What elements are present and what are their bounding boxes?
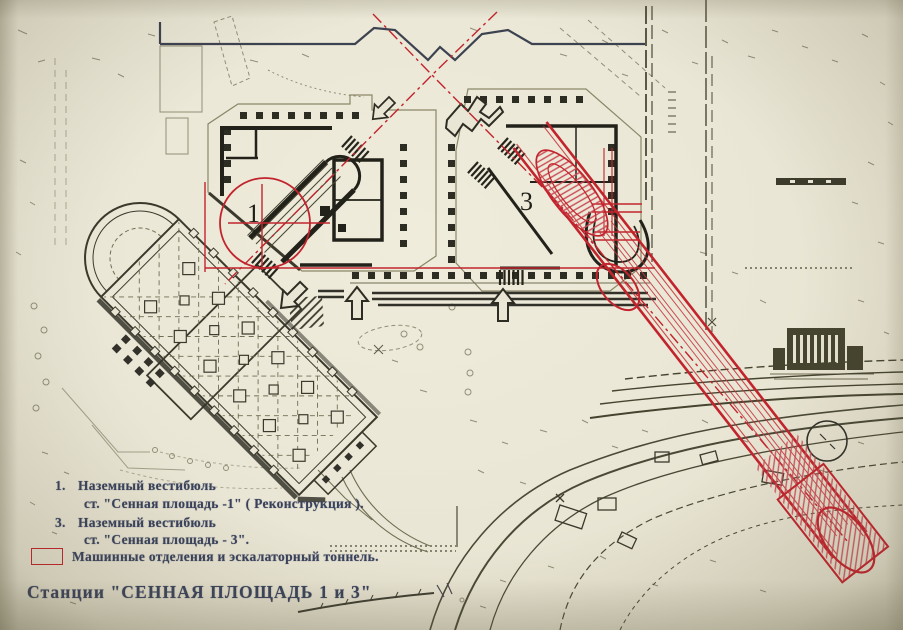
stair-comb — [252, 252, 279, 278]
legend-item-1-line2: ст. "Сенная площадь -1" ( Реконструкция … — [84, 496, 364, 512]
legend-item-1-line1: Наземный вестибюль — [78, 478, 216, 493]
colonnade-building — [770, 328, 874, 379]
legend-item-3-number: 3. — [55, 515, 78, 531]
vestibule-3-number: 3 — [520, 187, 533, 216]
legend-item-3: 3.Наземный вестибюль — [55, 515, 216, 531]
stair-comb — [468, 162, 495, 188]
scanned-site-plan: 1 3 1.Наземный вестибюль ст. "Сенная пло… — [0, 0, 903, 630]
legend-tunnel-item: Машинные отделения и эскалаторный тоннел… — [31, 548, 379, 565]
tunnel-legend-label: Машинные отделения и эскалаторный тоннел… — [72, 549, 379, 565]
legend-item-1-number: 1. — [55, 478, 78, 494]
page-title: Станции "СЕННАЯ ПЛОЩАДЬ 1 и 3" — [27, 582, 372, 603]
legend-item-3-line1: Наземный вестибюль — [78, 515, 216, 530]
small-buildings — [555, 451, 784, 549]
legend-item-1: 1.Наземный вестибюль — [55, 478, 216, 494]
right-street — [646, 0, 855, 332]
entrance-arrow — [346, 287, 368, 319]
legend-item-3-line2: ст. "Сенная площадь - 3". — [84, 532, 249, 548]
stair-comb — [498, 138, 525, 164]
tunnel-legend-swatch — [31, 548, 63, 565]
top-boundary-line — [160, 22, 645, 60]
vestibule-1-number: 1 — [247, 199, 260, 228]
